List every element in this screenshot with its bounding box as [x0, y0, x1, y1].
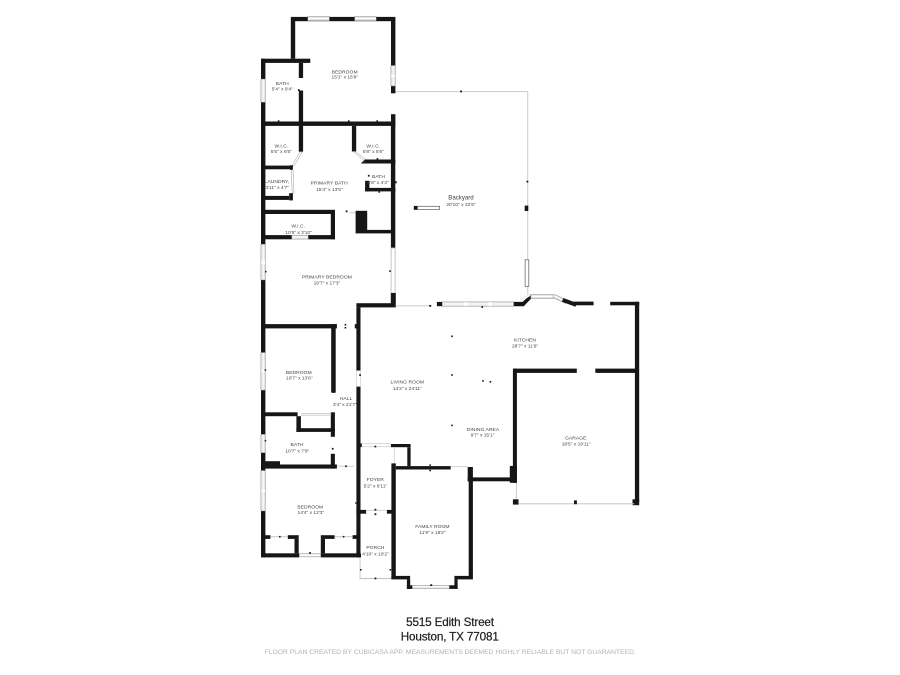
svg-text:W.I.C.: W.I.C. [275, 143, 289, 149]
svg-text:18'5" x 19'11": 18'5" x 19'11" [562, 442, 591, 448]
svg-text:BEDROOM: BEDROOM [297, 504, 323, 510]
svg-text:10'7" x 7'9": 10'7" x 7'9" [285, 449, 309, 455]
svg-text:3'11" x 4'7": 3'11" x 4'7" [265, 185, 289, 191]
svg-text:FLOOR PLAN CREATED BY CUBICASA: FLOOR PLAN CREATED BY CUBICASA APP. MEAS… [265, 649, 636, 656]
svg-text:W.I.C.: W.I.C. [366, 143, 380, 149]
svg-text:15'4" x 13'5": 15'4" x 13'5" [316, 187, 343, 193]
svg-text:GARAGE: GARAGE [565, 436, 587, 442]
svg-text:3'4" x 21'7": 3'4" x 21'7" [333, 402, 357, 408]
svg-text:PRIMARY BEDROOM: PRIMARY BEDROOM [302, 275, 352, 281]
svg-text:HALL: HALL [340, 396, 353, 402]
svg-text:LIVING ROOM: LIVING ROOM [391, 379, 424, 385]
svg-text:BATH: BATH [290, 442, 303, 448]
svg-text:5515 Edith Street: 5515 Edith Street [406, 616, 495, 629]
svg-text:LAUNDRY,: LAUNDRY, [265, 179, 290, 185]
svg-text:KITCHEN: KITCHEN [514, 337, 536, 343]
svg-text:15'1" x 15'9": 15'1" x 15'9" [332, 74, 359, 80]
svg-text:9'7" x 15'1": 9'7" x 15'1" [471, 433, 495, 439]
svg-text:BATH: BATH [276, 81, 289, 87]
svg-text:PORCH: PORCH [366, 545, 384, 551]
svg-text:BEDROOM: BEDROOM [286, 370, 312, 376]
svg-text:5'2" x 9'11": 5'2" x 9'11" [364, 484, 388, 490]
svg-text:FAMILY ROOM: FAMILY ROOM [415, 524, 449, 530]
svg-text:Houston, TX 77081: Houston, TX 77081 [401, 631, 499, 644]
svg-text:FOYER: FOYER [367, 477, 385, 483]
svg-text:PRIMARY BATH: PRIMARY BATH [311, 181, 348, 187]
svg-text:Backyard: Backyard [448, 195, 473, 202]
svg-text:11'9" x 18'2": 11'9" x 18'2" [419, 530, 445, 536]
svg-text:14'2" x 24'11": 14'2" x 24'11" [393, 386, 422, 392]
svg-text:20'10" x 32'6": 20'10" x 32'6" [446, 202, 476, 208]
svg-text:14'4" x 13'3": 14'4" x 13'3" [298, 510, 325, 516]
svg-text:5'5" x 6'5": 5'5" x 6'5" [271, 149, 292, 155]
svg-text:10'5" x 3'10": 10'5" x 3'10" [285, 230, 312, 236]
svg-text:4'10" x 10'2": 4'10" x 10'2" [362, 552, 389, 558]
svg-text:19'7" x 17'3": 19'7" x 17'3" [314, 280, 341, 286]
svg-text:BATH: BATH [372, 174, 385, 180]
svg-text:28'7" x 11'9": 28'7" x 11'9" [512, 344, 538, 350]
svg-text:10'7" x 13'6": 10'7" x 13'6" [286, 375, 313, 381]
svg-text:DINING AREA: DINING AREA [467, 427, 500, 433]
svg-text:5'4" x 9'4": 5'4" x 9'4" [272, 86, 293, 92]
svg-text:W.I.C.: W.I.C. [291, 224, 305, 230]
svg-text:5'8" x 5'6": 5'8" x 5'6" [363, 149, 384, 155]
svg-text:8'8" x 4'3": 8'8" x 4'3" [368, 180, 389, 186]
